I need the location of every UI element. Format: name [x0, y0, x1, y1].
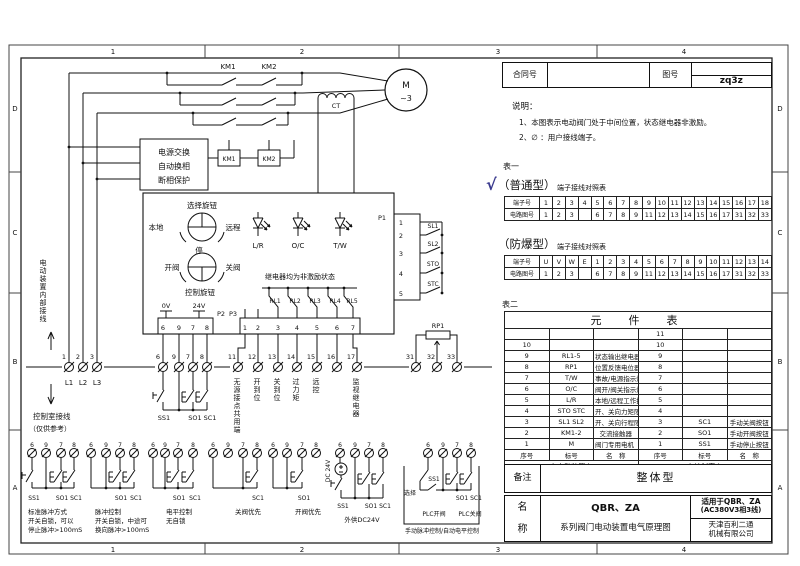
- applicability-company-cell: 适用于QBR、ZA (AC380V3相3线) 天津百利二通 机械有限公司: [691, 496, 771, 541]
- apply-line-1: 适用于QBR、ZA: [691, 497, 771, 506]
- psu-line2: 自动换相: [158, 161, 190, 171]
- rp1-label: RP1: [432, 322, 445, 330]
- normal-type-subtitle: 端子接线对照表: [557, 184, 606, 192]
- svg-text:开关自锁，可以: 开关自锁，可以: [28, 516, 74, 525]
- p1-label: P1: [378, 214, 386, 222]
- p3-label: P3: [229, 310, 237, 318]
- zone-top-3: 3: [496, 48, 500, 56]
- svg-text:L3: L3: [93, 379, 101, 387]
- psu-line1: 电源交换: [158, 147, 190, 157]
- psu-line3: 断相保护: [158, 175, 190, 185]
- table-row: 元 件 表: [505, 312, 772, 329]
- svg-text:6: 6: [426, 442, 430, 449]
- zone-bottom-1: 1: [111, 546, 115, 554]
- motor-label: M: [402, 81, 410, 91]
- model-series: QBR、ZA: [591, 503, 640, 515]
- svg-text:14: 14: [287, 353, 295, 361]
- led-indicators: [253, 212, 352, 236]
- boundary-arrows: [48, 332, 54, 404]
- zone-bottom-3: 3: [496, 546, 500, 554]
- zone-bottom-2: 2: [300, 546, 304, 554]
- km2-contact-label: KM2: [261, 63, 276, 71]
- zone-right-b: B: [778, 358, 783, 366]
- contract-header: 合同号 图号 zq3z: [502, 62, 772, 88]
- table-row: 6O/C阀开/阀关指示灯6: [505, 384, 772, 395]
- zone-left-b: B: [13, 358, 18, 366]
- svg-text:9: 9: [163, 442, 167, 449]
- table-row: 电路图号 12 3 67 89 1112 1314 1516 1731 3233: [505, 268, 772, 280]
- svg-text:SO1: SO1: [115, 495, 128, 502]
- table2-label: 表二: [502, 300, 518, 309]
- table-row: 4STO STC开、关向力矩限位开关4: [505, 406, 772, 417]
- control-knob-label: 控制旋钮: [185, 287, 215, 297]
- svg-text:2: 2: [76, 353, 80, 361]
- svg-text:7: 7: [191, 324, 195, 332]
- zone-top-1: 1: [111, 48, 115, 56]
- option-group-4-labels: 6 9 7 8 SC1 关阀优先: [211, 442, 264, 516]
- rl5-label: RL5: [346, 298, 358, 305]
- svg-text:9: 9: [285, 442, 289, 449]
- svg-text:7: 7: [186, 353, 190, 361]
- svg-text:SO1: SO1: [56, 495, 69, 502]
- svg-text:SC1: SC1: [189, 495, 201, 502]
- table-row: 2KM1-2交流接触器2SO1手动开阀按钮: [505, 428, 772, 439]
- svg-text:6: 6: [161, 324, 165, 332]
- svg-text:7: 7: [118, 442, 122, 449]
- selector-knob-label: 选择旋钮: [187, 200, 217, 210]
- table-row: 5L/R本地/远程工作指示灯5: [505, 395, 772, 406]
- svg-text:8: 8: [255, 442, 259, 449]
- company-line-1: 天津百利二通: [691, 520, 771, 529]
- svg-text:8: 8: [132, 442, 136, 449]
- svg-text:9: 9: [172, 353, 176, 361]
- zone-bottom-4: 4: [682, 546, 687, 554]
- svg-text:8: 8: [381, 442, 385, 449]
- option-group-5-labels: 6 9 7 8 SO1 开阀优先: [271, 442, 321, 516]
- apply-line-2: (AC380V3相3线): [691, 506, 771, 514]
- table-row: 7T/W事故/电源指示灯7: [505, 373, 772, 384]
- svg-text:3: 3: [90, 353, 94, 361]
- svg-text:9: 9: [226, 442, 230, 449]
- main-pushbuttons: [153, 372, 208, 410]
- svg-text:9: 9: [177, 324, 181, 332]
- drawing-no-top: [692, 63, 771, 76]
- svg-text:7: 7: [300, 442, 304, 449]
- option-group-2: [87, 449, 139, 489]
- svg-text:开关自锁，中途可: 开关自锁，中途可: [95, 516, 148, 525]
- led-oc-label: O/C: [292, 242, 305, 250]
- drawing-no-value: zq3z: [692, 76, 771, 87]
- sc1-main-label: SC1: [204, 414, 217, 422]
- rail-24v-label: 24V: [193, 302, 206, 310]
- option-group-1: [22, 449, 79, 489]
- room-wiring-ref: （仅供参考）: [29, 424, 71, 433]
- option-group-6: [331, 449, 388, 499]
- svg-text:31: 31: [406, 353, 414, 361]
- remark-value: 整体型: [541, 465, 771, 492]
- svg-text:手动脉冲控制/自动电平控制: 手动脉冲控制/自动电平控制: [405, 527, 479, 535]
- svg-text:开阀优先: 开阀优先: [295, 507, 322, 516]
- drawing-sheet: 1 2 3 4 1 2 3 4 D C B A D C B A M ~3 CT …: [0, 0, 800, 566]
- stc-label: STC: [427, 281, 438, 288]
- notes-title: 说明：: [512, 103, 538, 113]
- table-row: 1010: [505, 340, 772, 351]
- led-tw-label: T/W: [332, 242, 347, 250]
- svg-text:6: 6: [89, 442, 93, 449]
- selector-knob: [180, 213, 224, 242]
- contract-value: [548, 63, 650, 87]
- table-row: 端子号 12 34 56 78 910 1112 1314 1516 1718: [505, 197, 772, 209]
- table-row: 1M阀门专用电机（AC380V）1SS1手动停止按钮: [505, 439, 772, 450]
- svg-text:9: 9: [104, 442, 108, 449]
- drawing-no-label: 图号: [650, 63, 692, 87]
- svg-text:8: 8: [205, 324, 209, 332]
- svg-text:1: 1: [243, 324, 247, 332]
- svg-text:9: 9: [353, 442, 357, 449]
- svg-text:SC1: SC1: [252, 495, 264, 502]
- note-line-1: 1、本图表示电动阀门处于中间位置，状态继电器非激励。: [519, 119, 774, 128]
- note-line-2: 2、∅ ：用户接线端子。: [519, 134, 769, 143]
- svg-text:6: 6: [211, 442, 215, 449]
- remark-label: 备注: [505, 465, 541, 492]
- sto-label: STO: [427, 261, 439, 268]
- svg-text:3: 3: [276, 324, 280, 332]
- svg-text:7: 7: [351, 324, 355, 332]
- ct-label: CT: [332, 102, 341, 110]
- table-row: 9RL1-5状态输出继电器9: [505, 351, 772, 362]
- svg-text:12: 12: [248, 353, 256, 361]
- sl2-label: SL2: [428, 241, 439, 248]
- so1-main-label: SO1: [188, 414, 201, 422]
- svg-text:9: 9: [441, 442, 445, 449]
- signal-label-monitor: 监视继电器: [352, 378, 359, 418]
- svg-text:6: 6: [30, 442, 34, 449]
- svg-text:9: 9: [44, 442, 48, 449]
- svg-text:16: 16: [327, 353, 335, 361]
- svg-text:换向脉冲>100mS: 换向脉冲>100mS: [95, 525, 149, 534]
- company-line-2: 机械有限公司: [691, 529, 771, 538]
- table-row: 电路图号 12 3 67 89 1112 1314 1516 1731 3233: [505, 209, 772, 221]
- svg-text:7: 7: [367, 442, 371, 449]
- svg-text:4: 4: [399, 270, 403, 278]
- svg-text:7: 7: [241, 442, 245, 449]
- dc24v-source-label: DC 24V: [325, 459, 332, 482]
- svg-text:SC1: SC1: [379, 503, 391, 510]
- svg-text:脉冲控制: 脉冲控制: [95, 507, 122, 516]
- table-row: 11: [505, 329, 772, 340]
- zone-right-a: A: [778, 484, 783, 492]
- svg-text:4: 4: [295, 324, 299, 332]
- normal-type-title: （普通型）: [498, 179, 556, 192]
- svg-text:SS1: SS1: [337, 503, 349, 510]
- zone-left-d: D: [12, 105, 17, 113]
- relay-state-note: 继电器均为非激励状态: [265, 272, 335, 281]
- svg-text:3: 3: [399, 250, 403, 258]
- signal-label-open: 开到位: [253, 378, 260, 402]
- company: 天津百利二通 机械有限公司: [691, 519, 771, 541]
- rl4-label: RL4: [329, 298, 341, 305]
- led-lr-label: L/R: [252, 242, 263, 250]
- svg-text:7: 7: [59, 442, 63, 449]
- svg-text:外供DC24V: 外供DC24V: [344, 515, 380, 524]
- open-valve-label: 开阀: [165, 263, 180, 272]
- svg-text:SC1: SC1: [70, 495, 82, 502]
- sl1-label: SL1: [428, 223, 439, 230]
- svg-text:7: 7: [455, 442, 459, 449]
- component-table-header: 序号标号名 称 序号标号名 称: [505, 450, 772, 461]
- zone-left-c: C: [13, 229, 18, 237]
- remote-label: 远程: [226, 223, 241, 232]
- rl3-label: RL3: [309, 298, 321, 305]
- svg-text:8: 8: [200, 353, 204, 361]
- svg-text:L1: L1: [65, 379, 73, 387]
- svg-text:32: 32: [427, 353, 435, 361]
- row-label: 端子号: [505, 256, 540, 268]
- terminal-table-explosion: 端子号 UV WE 12 34 56 78 910 1112 1314 电路图号…: [504, 255, 772, 280]
- title-block: 名 称 QBR、ZA 系列阀门电动装置电气原理图 适用于QBR、ZA (AC38…: [504, 495, 772, 542]
- close-valve-label: 关阀: [226, 262, 241, 272]
- drawing-title-cell: QBR、ZA 系列阀门电动装置电气原理图: [541, 496, 691, 541]
- p2-pin-labels: 6 9 7 8: [161, 324, 209, 332]
- svg-text:SS1: SS1: [28, 495, 40, 502]
- name-label-1: 名: [518, 502, 528, 514]
- p1-pin-labels: 1 2 3 4 5: [399, 219, 403, 298]
- signal-label-common: 无源接点共用端: [233, 378, 240, 434]
- applicability: 适用于QBR、ZA (AC380V3相3线): [691, 496, 771, 519]
- km1-coil-label: KM1: [223, 156, 236, 163]
- ss1-main-label: SS1: [158, 414, 170, 422]
- control-board-box: [143, 193, 394, 334]
- table1-label: 表一: [503, 162, 519, 171]
- svg-text:6: 6: [271, 442, 275, 449]
- svg-text:1: 1: [399, 219, 403, 227]
- svg-text:17: 17: [347, 353, 355, 361]
- option-group-5: [269, 449, 321, 489]
- name-label-cell: 名 称: [505, 496, 541, 541]
- svg-text:6: 6: [338, 442, 342, 449]
- row-label: 电路图号: [505, 268, 540, 280]
- svg-text:选择: 选择: [404, 489, 416, 497]
- svg-text:8: 8: [314, 442, 318, 449]
- km2-coil-label: KM2: [263, 156, 276, 163]
- svg-text:停止脉冲>100mS: 停止脉冲>100mS: [28, 525, 82, 534]
- svg-text:SO1: SO1: [456, 495, 469, 502]
- local-label: 本地: [149, 222, 164, 232]
- signal-label-torque: 过力矩: [292, 378, 299, 402]
- zone-top-2: 2: [300, 48, 304, 56]
- zone-right-d: D: [777, 105, 782, 113]
- svg-text:6: 6: [335, 324, 339, 332]
- svg-text:电平控制: 电平控制: [166, 507, 193, 516]
- contract-label: 合同号: [503, 63, 548, 87]
- svg-text:2: 2: [256, 324, 260, 332]
- signal-label-closed: 关到位: [273, 378, 280, 402]
- svg-text:SO1: SO1: [173, 495, 186, 502]
- svg-text:1: 1: [62, 353, 66, 361]
- svg-text:关阀优先: 关阀优先: [235, 507, 262, 516]
- svg-text:8: 8: [469, 442, 473, 449]
- svg-text:11: 11: [228, 353, 236, 361]
- svg-text:5: 5: [399, 290, 403, 298]
- p3-pin-labels: 1 2 3 4 5 6 7: [243, 324, 355, 332]
- table-row: 3SL1 SL2开、关向行程限位开关3SC1手动关阀按钮: [505, 417, 772, 428]
- svg-text:33: 33: [447, 353, 455, 361]
- rl2-label: RL2: [289, 298, 301, 305]
- rail-0v-label: 0V: [162, 302, 171, 310]
- svg-text:L2: L2: [79, 379, 87, 387]
- remark-block: 备注 整体型: [504, 464, 772, 493]
- option-group-4: [209, 449, 262, 489]
- svg-text:6: 6: [156, 353, 160, 361]
- table-row: 8RP1位置反馈电位器8: [505, 362, 772, 373]
- drawing-no-cell: zq3z: [692, 63, 771, 87]
- motor-phase-label: ~3: [400, 94, 412, 103]
- drawing-title: 系列阀门电动装置电气原理图: [560, 524, 671, 534]
- svg-text:PLC开阀: PLC开阀: [422, 510, 445, 518]
- svg-text:15: 15: [307, 353, 315, 361]
- svg-text:5: 5: [315, 324, 319, 332]
- svg-text:无自锁: 无自锁: [166, 516, 186, 525]
- svg-text:7: 7: [176, 442, 180, 449]
- svg-text:SO1: SO1: [298, 495, 311, 502]
- explosion-type-subtitle: 端子接线对照表: [557, 243, 606, 251]
- svg-text:SS1: SS1: [428, 476, 440, 483]
- svg-text:8: 8: [191, 442, 195, 449]
- zone-right-c: C: [778, 229, 783, 237]
- option-group-3: [149, 449, 198, 489]
- explosion-type-title: （防爆型）: [498, 238, 556, 251]
- svg-text:SC1: SC1: [130, 495, 142, 502]
- internal-wiring-label: 电动装置内部接线: [39, 259, 46, 323]
- name-label-2: 称: [518, 524, 528, 536]
- control-knob: [180, 253, 224, 282]
- svg-text:PLC关阀: PLC关阀: [458, 510, 481, 518]
- component-table: 元 件 表 11 1010 9RL1-5状态输出继电器9 8RP1位置反馈电位器…: [504, 311, 772, 473]
- supply-rails: [160, 311, 205, 318]
- signal-label-remote: 远控: [312, 378, 319, 394]
- stop-label: 停: [195, 245, 203, 255]
- row-label: 端子号: [505, 197, 540, 209]
- zone-top-4: 4: [682, 48, 687, 56]
- p2-label: P2: [217, 310, 225, 318]
- row-label: 电路图号: [505, 209, 540, 221]
- svg-text:6: 6: [151, 442, 155, 449]
- zone-left-a: A: [13, 484, 18, 492]
- terminal-table-normal: 端子号 12 34 56 78 910 1112 1314 1516 1718 …: [504, 196, 772, 221]
- svg-text:2: 2: [399, 232, 403, 240]
- room-wiring-label: 控制室接线: [33, 411, 71, 421]
- km1-contact-label: KM1: [220, 63, 235, 71]
- rl1-label: RL1: [269, 298, 281, 305]
- svg-text:SC1: SC1: [470, 495, 482, 502]
- junction-dots: [45, 72, 459, 500]
- svg-text:13: 13: [268, 353, 276, 361]
- table-row: 端子号 UV WE 12 34 56 78 910 1112 1314: [505, 256, 772, 268]
- svg-text:8: 8: [72, 442, 76, 449]
- svg-text:SO1: SO1: [365, 503, 378, 510]
- svg-text:标准脉冲方式: 标准脉冲方式: [28, 507, 68, 516]
- component-table-title: 元 件 表: [505, 312, 772, 329]
- checkmark: √: [486, 176, 497, 194]
